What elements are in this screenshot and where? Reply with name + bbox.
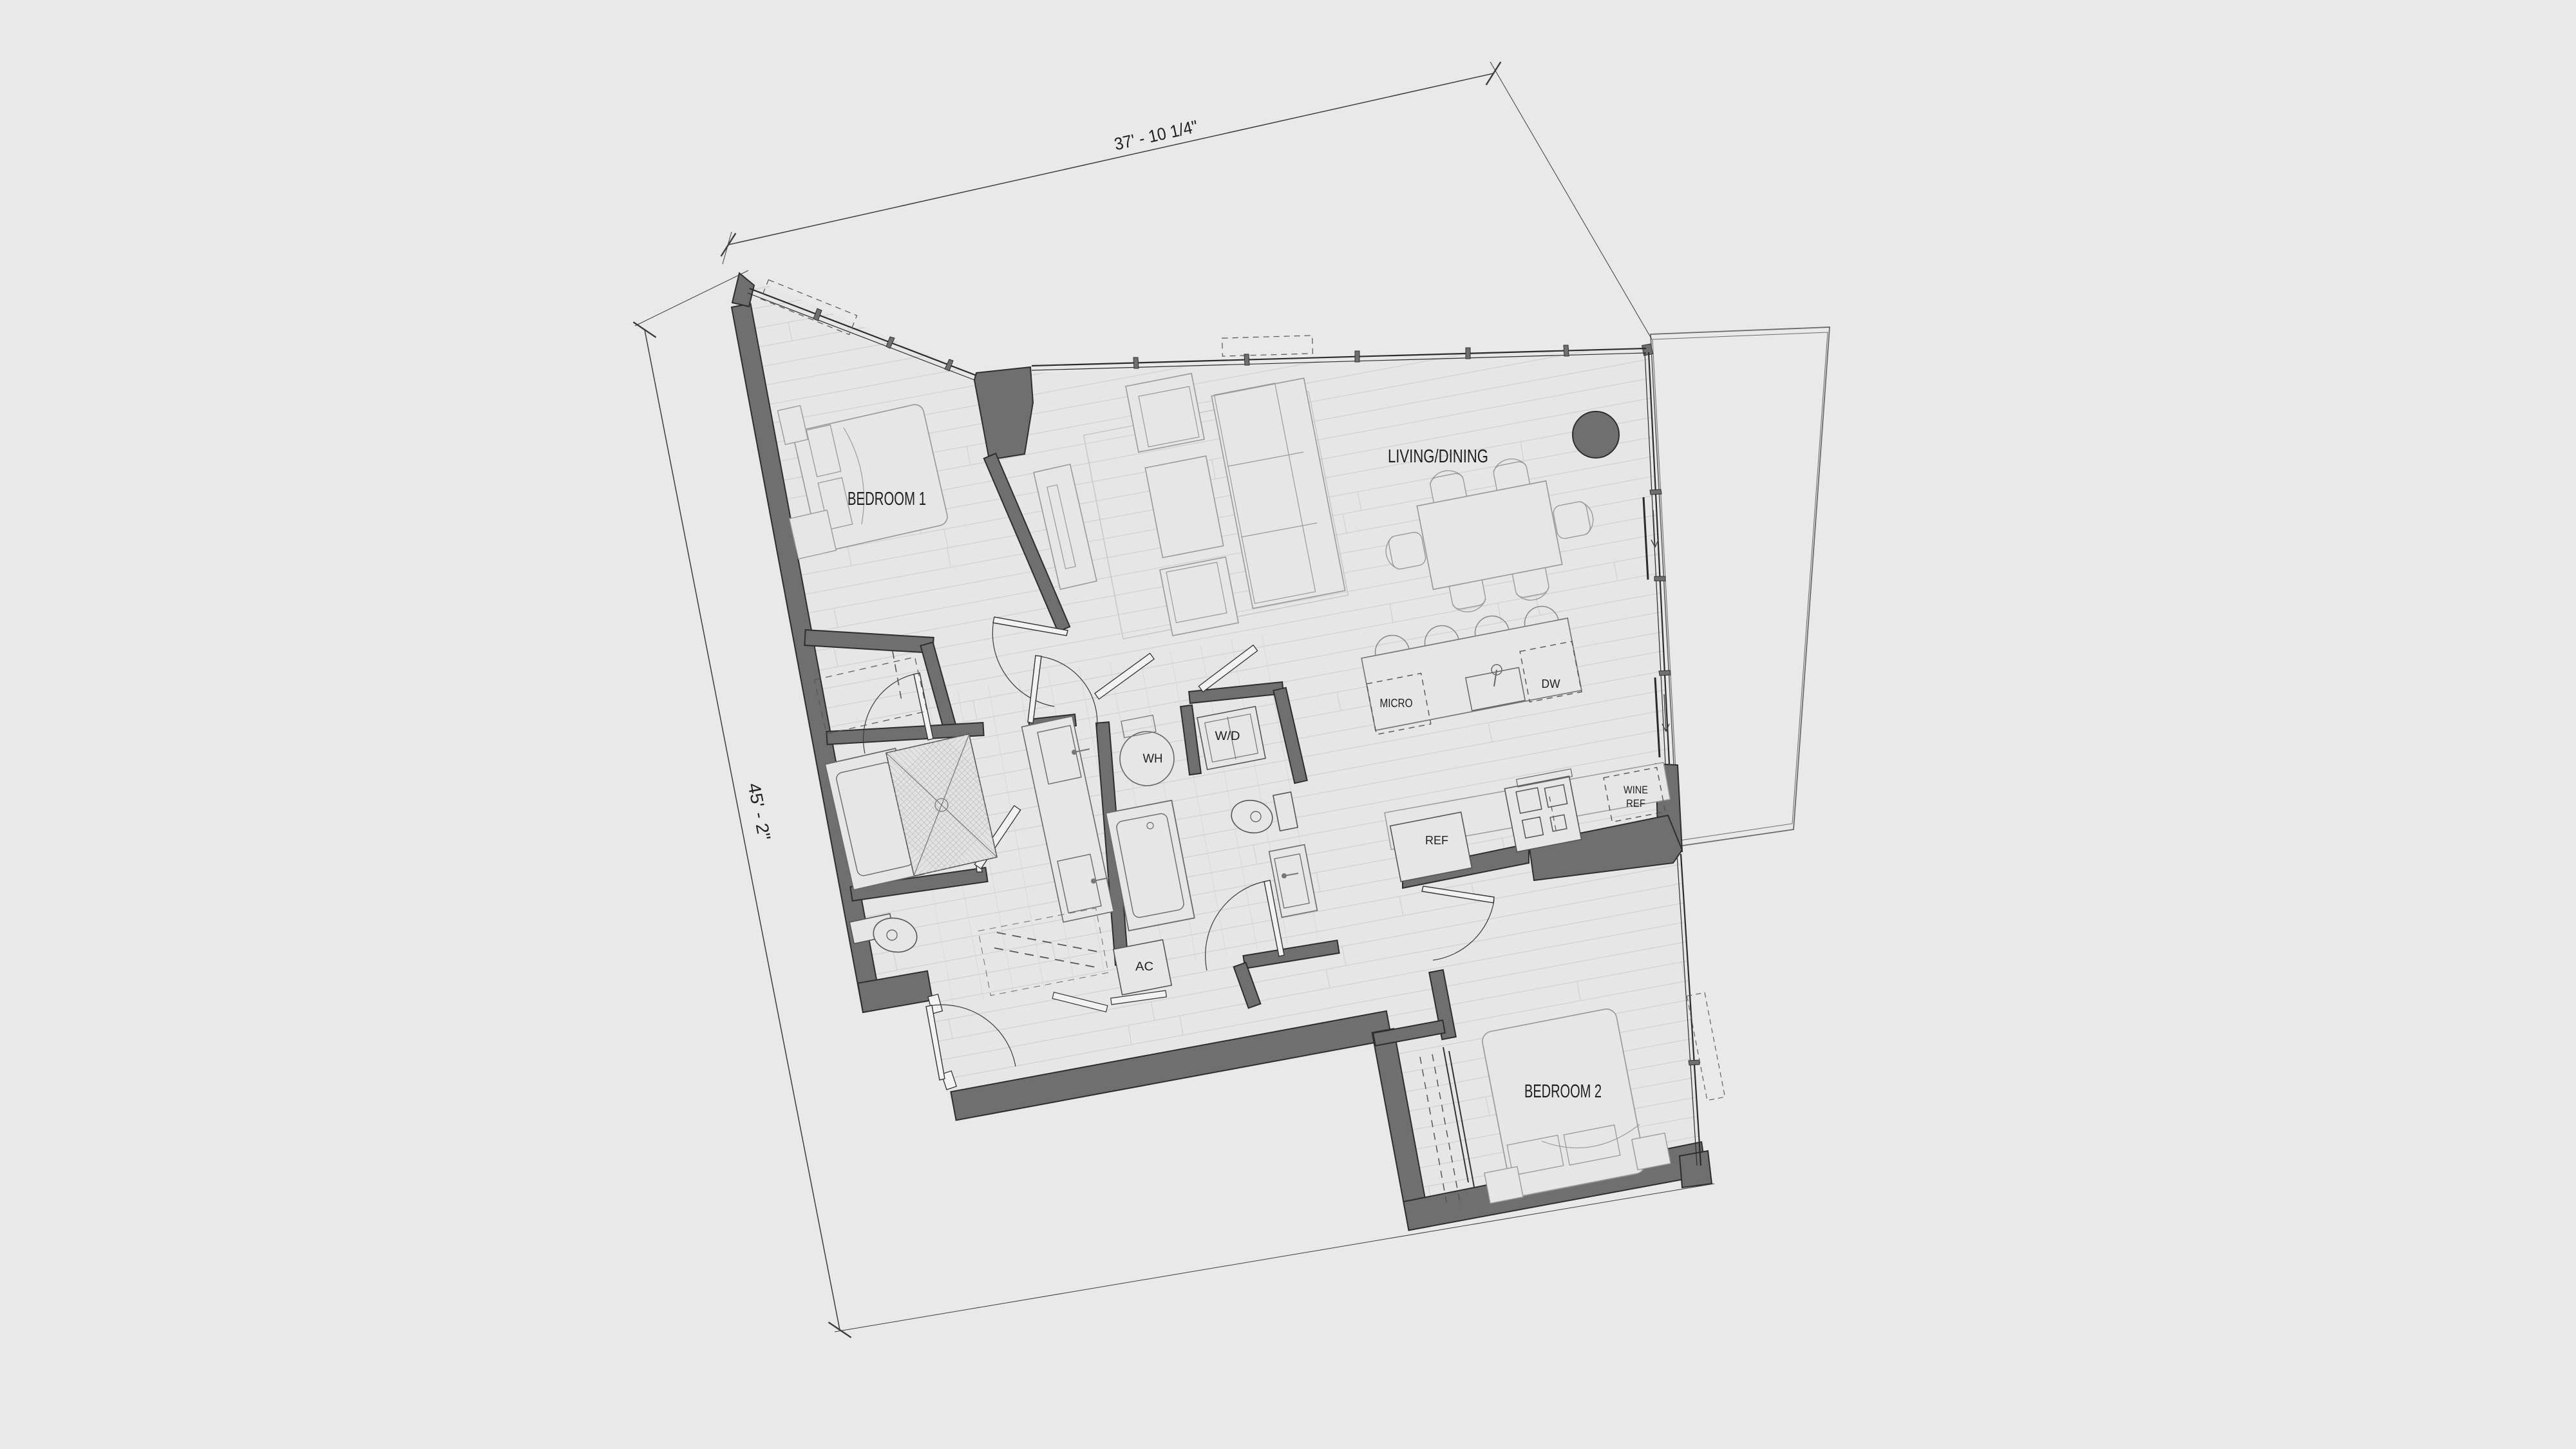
svg-text:BEDROOM 1: BEDROOM 1 bbox=[848, 489, 926, 509]
svg-text:BEDROOM 2: BEDROOM 2 bbox=[1524, 1081, 1602, 1102]
svg-text:DW: DW bbox=[1542, 677, 1560, 690]
svg-text:REF: REF bbox=[1425, 834, 1448, 847]
svg-text:LIVING/DINING: LIVING/DINING bbox=[1388, 446, 1488, 467]
svg-text:AC: AC bbox=[1135, 960, 1153, 974]
svg-text:WINE: WINE bbox=[1624, 784, 1648, 796]
svg-text:REF: REF bbox=[1626, 797, 1645, 810]
svg-text:W/D: W/D bbox=[1215, 730, 1240, 743]
svg-text:WH: WH bbox=[1143, 752, 1163, 766]
svg-text:MICRO: MICRO bbox=[1380, 697, 1413, 710]
